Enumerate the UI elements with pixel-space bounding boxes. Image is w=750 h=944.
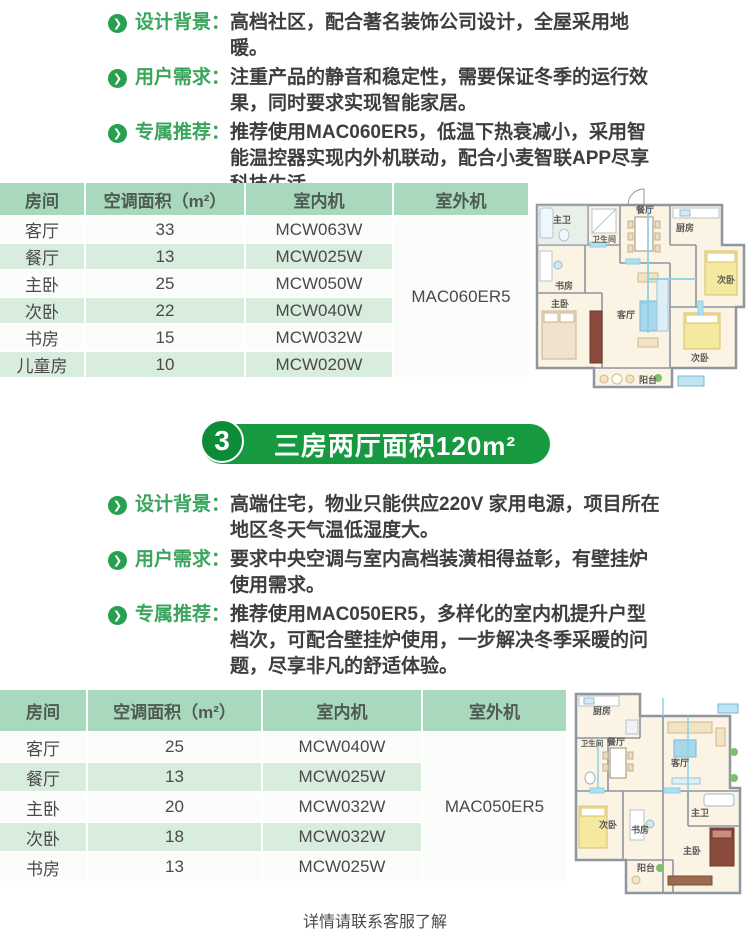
room-label: 客厅 [616, 309, 635, 320]
cell-room: 次卧 [0, 298, 86, 325]
floorplan-case3: 厨房 餐厅 客厅 卫生间 次卧 书房 主卫 主卧 阳台 [568, 688, 750, 907]
bullet-label: 专属推荐： [135, 120, 230, 146]
cell-indoor: MCW063W [246, 217, 394, 244]
arrow-circle-icon: ❯ [108, 551, 127, 570]
room-label: 书房 [555, 280, 573, 291]
col-area: 空调面积（m²） [86, 183, 246, 217]
cell-indoor: MCW032W [246, 325, 394, 352]
footer-note: 详情请联系客服了解 [0, 908, 750, 932]
cell-area: 15 [86, 325, 246, 352]
cell-room: 书房 [0, 853, 88, 883]
bullet-text: 推荐使用MAC050ER5，多样化的室内机提升户型档次，可配合壁挂炉使用，一步解… [230, 602, 662, 680]
room-label: 客厅 [670, 757, 689, 768]
cell-indoor: MCW050W [246, 271, 394, 298]
table-header-row: 房间 空调面积（m²） 室内机 室外机 [0, 183, 530, 217]
room-label: 卫生间 [581, 738, 604, 748]
table-header-row: 房间 空调面积（m²） 室内机 室外机 [0, 690, 568, 733]
room-label: 次卧 [599, 819, 617, 830]
cell-room: 次卧 [0, 823, 88, 853]
bullet-recommendation: ❯ 专属推荐： 推荐使用MAC050ER5，多样化的室内机提升户型档次，可配合壁… [108, 602, 662, 680]
arrow-circle-icon: ❯ [108, 14, 127, 33]
spec-table-case3: 房间 空调面积（m²） 室内机 室外机 客厅 25 MCW040W MAC050… [0, 690, 568, 883]
cell-area: 25 [86, 271, 246, 298]
arrow-circle-icon: ❯ [108, 124, 127, 143]
bullet-label: 用户需求： [135, 65, 230, 91]
room-label: 阳台 [637, 862, 655, 873]
bullet-label: 设计背景： [135, 10, 230, 36]
arrow-circle-icon: ❯ [108, 69, 127, 88]
arrow-circle-icon: ❯ [108, 496, 127, 515]
table-row: 客厅 33 MCW063W MAC060ER5 [0, 217, 530, 244]
room-label: 主卫 [553, 214, 571, 225]
col-area: 空调面积（m²） [88, 690, 263, 733]
cell-room: 餐厅 [0, 763, 88, 793]
cell-indoor: MCW020W [246, 352, 394, 379]
cell-room: 主卧 [0, 793, 88, 823]
cell-room: 餐厅 [0, 244, 86, 271]
cell-area: 13 [88, 763, 263, 793]
room-label: 厨房 [593, 705, 611, 716]
col-indoor-unit: 室内机 [263, 690, 423, 733]
bullet-user-needs: ❯ 用户需求： 要求中央空调与室内高档装潢相得益彰，有壁挂炉使用需求。 [108, 547, 662, 599]
bullet-label: 专属推荐： [135, 602, 230, 628]
cell-indoor: MCW032W [263, 793, 423, 823]
bullet-label: 用户需求： [135, 547, 230, 573]
room-label: 次卧 [717, 274, 735, 285]
room-label: 书房 [631, 824, 649, 835]
room-label: 主卧 [683, 845, 701, 856]
col-indoor-unit: 室内机 [246, 183, 394, 217]
cell-room: 儿童房 [0, 352, 86, 379]
top-bullet-section: ❯ 设计背景： 高档社区，配合著名装饰公司设计，全屋采用地暖。 ❯ 用户需求： … [108, 10, 662, 198]
case3-bullet-section: ❯ 设计背景： 高端住宅，物业只能供应220V 家用电源，项目所在地区冬天气温低… [108, 492, 662, 680]
cell-area: 10 [86, 352, 246, 379]
cell-indoor: MCW032W [263, 823, 423, 853]
bullet-user-needs: ❯ 用户需求： 注重产品的静音和稳定性，需要保证冬季的运行效果，同时要求实现智能… [108, 65, 662, 117]
bullet-label: 设计背景： [135, 492, 230, 518]
room-label: 主卧 [551, 298, 569, 309]
bullet-text: 高档社区，配合著名装饰公司设计，全屋采用地暖。 [230, 10, 662, 62]
bullet-text: 要求中央空调与室内高档装潢相得益彰，有壁挂炉使用需求。 [230, 547, 662, 599]
cell-outdoor-unit: MAC060ER5 [394, 217, 530, 379]
cell-indoor: MCW025W [263, 853, 423, 883]
cell-area: 13 [88, 853, 263, 883]
arrow-circle-icon: ❯ [108, 606, 127, 625]
col-room: 房间 [0, 690, 88, 733]
table-row: 客厅 25 MCW040W MAC050ER5 [0, 733, 568, 763]
col-room: 房间 [0, 183, 86, 217]
cell-area: 18 [88, 823, 263, 853]
cell-room: 主卧 [0, 271, 86, 298]
cell-area: 13 [86, 244, 246, 271]
cell-area: 22 [86, 298, 246, 325]
bullet-text: 高端住宅，物业只能供应220V 家用电源，项目所在地区冬天气温低湿度大。 [230, 492, 662, 544]
bullet-design-background: ❯ 设计背景： 高档社区，配合著名装饰公司设计，全屋采用地暖。 [108, 10, 662, 62]
section-title: 三房两厅面积120m² [250, 424, 540, 464]
col-outdoor-unit: 室外机 [423, 690, 568, 733]
section-badge: 3 三房两厅面积120m² [202, 424, 550, 464]
col-outdoor-unit: 室外机 [394, 183, 530, 217]
floorplan-case2: 主卫 卫生间 餐厅 厨房 次卧 书房 主卧 客厅 次卧 阳台 [530, 183, 750, 397]
room-label: 餐厅 [635, 204, 654, 215]
room-label: 餐厅 [606, 736, 625, 747]
spec-table-case2: 房间 空调面积（m²） 室内机 室外机 客厅 33 MCW063W MAC060… [0, 183, 530, 379]
cell-area: 33 [86, 217, 246, 244]
badge-number: 3 [200, 419, 244, 463]
cell-room: 客厅 [0, 217, 86, 244]
room-label: 卫生间 [592, 234, 616, 244]
cell-outdoor-unit: MAC050ER5 [423, 733, 568, 883]
bullet-design-background: ❯ 设计背景： 高端住宅，物业只能供应220V 家用电源，项目所在地区冬天气温低… [108, 492, 662, 544]
cell-indoor: MCW025W [263, 763, 423, 793]
cell-indoor: MCW025W [246, 244, 394, 271]
cell-area: 20 [88, 793, 263, 823]
cell-indoor: MCW040W [246, 298, 394, 325]
cell-indoor: MCW040W [263, 733, 423, 763]
cell-area: 25 [88, 733, 263, 763]
room-label: 次卧 [691, 352, 709, 363]
room-label: 阳台 [639, 374, 657, 385]
room-label: 厨房 [676, 222, 694, 233]
bullet-text: 注重产品的静音和稳定性，需要保证冬季的运行效果，同时要求实现智能家居。 [230, 65, 662, 117]
cell-room: 客厅 [0, 733, 88, 763]
cell-room: 书房 [0, 325, 86, 352]
room-label: 主卫 [691, 807, 709, 818]
